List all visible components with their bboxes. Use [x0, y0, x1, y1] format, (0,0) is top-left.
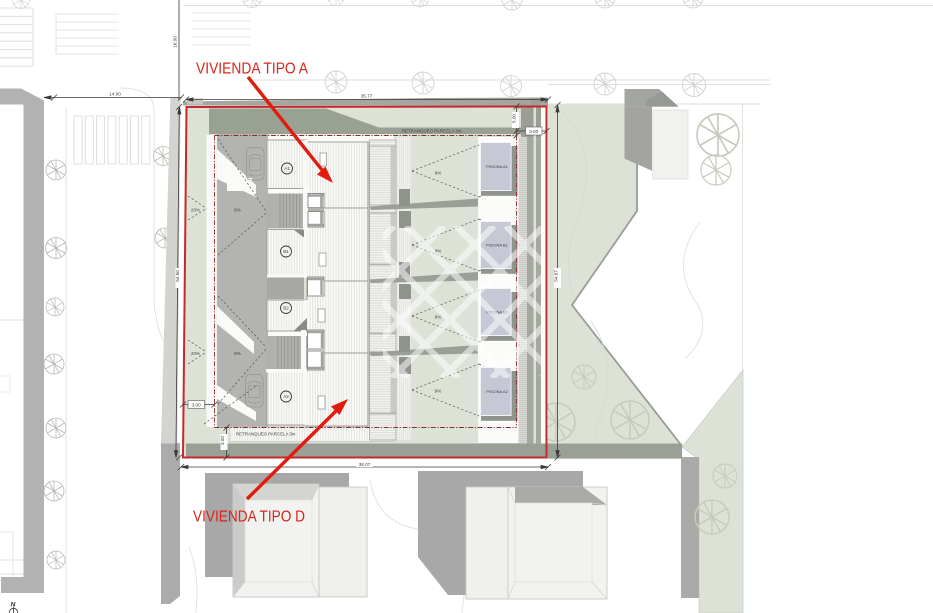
svg-text:38.07: 38.07	[359, 462, 371, 467]
svg-text:9%: 9%	[435, 171, 442, 176]
svg-text:9%: 9%	[435, 389, 442, 394]
svg-text:8%: 8%	[234, 351, 241, 356]
svg-text:5.00: 5.00	[512, 114, 517, 123]
svg-text:A2: A2	[283, 394, 289, 399]
svg-text:B1: B1	[283, 249, 289, 254]
svg-text:VIVIENDA TIPO A: VIVIENDA TIPO A	[196, 61, 309, 78]
svg-text:PISCINA A1: PISCINA A1	[486, 164, 508, 169]
svg-text:8%: 8%	[234, 208, 241, 213]
svg-text:VIVIENDA TIPO D: VIVIENDA TIPO D	[193, 509, 305, 526]
svg-text:PISCINA A2: PISCINA A2	[486, 389, 508, 394]
svg-text:3.00: 3.00	[529, 129, 538, 134]
svg-text:16.00: 16.00	[173, 36, 178, 48]
svg-text:3.00: 3.00	[192, 403, 201, 408]
svg-text:RETRANQUEO PARCELA 3m: RETRANQUEO PARCELA 3m	[402, 129, 462, 134]
svg-text:14.00: 14.00	[109, 92, 121, 97]
svg-text:20%: 20%	[191, 208, 200, 213]
svg-text:RETRANQUEO PARCELA 3m: RETRANQUEO PARCELA 3m	[236, 432, 296, 437]
svg-text:35.77: 35.77	[361, 93, 373, 98]
svg-text:A1: A1	[284, 166, 290, 171]
svg-text:PISCINA B1: PISCINA B1	[486, 243, 509, 248]
svg-text:B2: B2	[283, 306, 289, 311]
svg-text:9%: 9%	[435, 315, 442, 320]
svg-text:3.00: 3.00	[220, 436, 225, 445]
svg-text:54.87: 54.87	[554, 270, 559, 282]
svg-text:20%: 20%	[191, 351, 200, 356]
svg-text:54.60: 54.60	[175, 270, 180, 282]
